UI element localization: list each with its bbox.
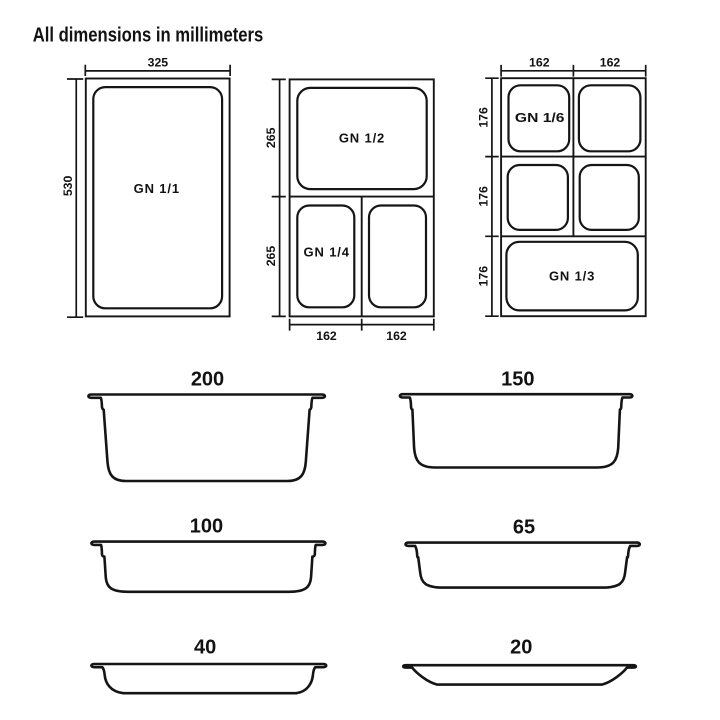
- svg-text:265: 265: [264, 127, 278, 148]
- svg-text:100: 100: [190, 516, 223, 538]
- svg-text:265: 265: [264, 246, 278, 267]
- svg-text:20: 20: [510, 636, 532, 658]
- svg-text:176: 176: [477, 107, 491, 128]
- svg-text:GN 1/6: GN 1/6: [515, 110, 565, 125]
- svg-text:GN 1/4: GN 1/4: [304, 245, 350, 260]
- svg-text:162: 162: [386, 329, 407, 343]
- svg-text:176: 176: [477, 266, 491, 287]
- svg-text:40: 40: [194, 636, 216, 658]
- svg-text:150: 150: [501, 369, 534, 391]
- svg-text:162: 162: [529, 55, 550, 69]
- svg-text:325: 325: [148, 56, 169, 70]
- svg-text:162: 162: [316, 329, 337, 343]
- svg-text:176: 176: [477, 186, 491, 207]
- svg-text:530: 530: [61, 175, 75, 196]
- svg-text:GN 1/3: GN 1/3: [549, 269, 595, 284]
- svg-text:200: 200: [191, 369, 224, 391]
- svg-text:GN 1/1: GN 1/1: [134, 181, 180, 196]
- svg-text:162: 162: [600, 55, 621, 69]
- svg-text:All dimensions in millimeters: All dimensions in millimeters: [33, 24, 264, 46]
- svg-text:65: 65: [513, 516, 535, 538]
- svg-text:GN 1/2: GN 1/2: [339, 130, 385, 145]
